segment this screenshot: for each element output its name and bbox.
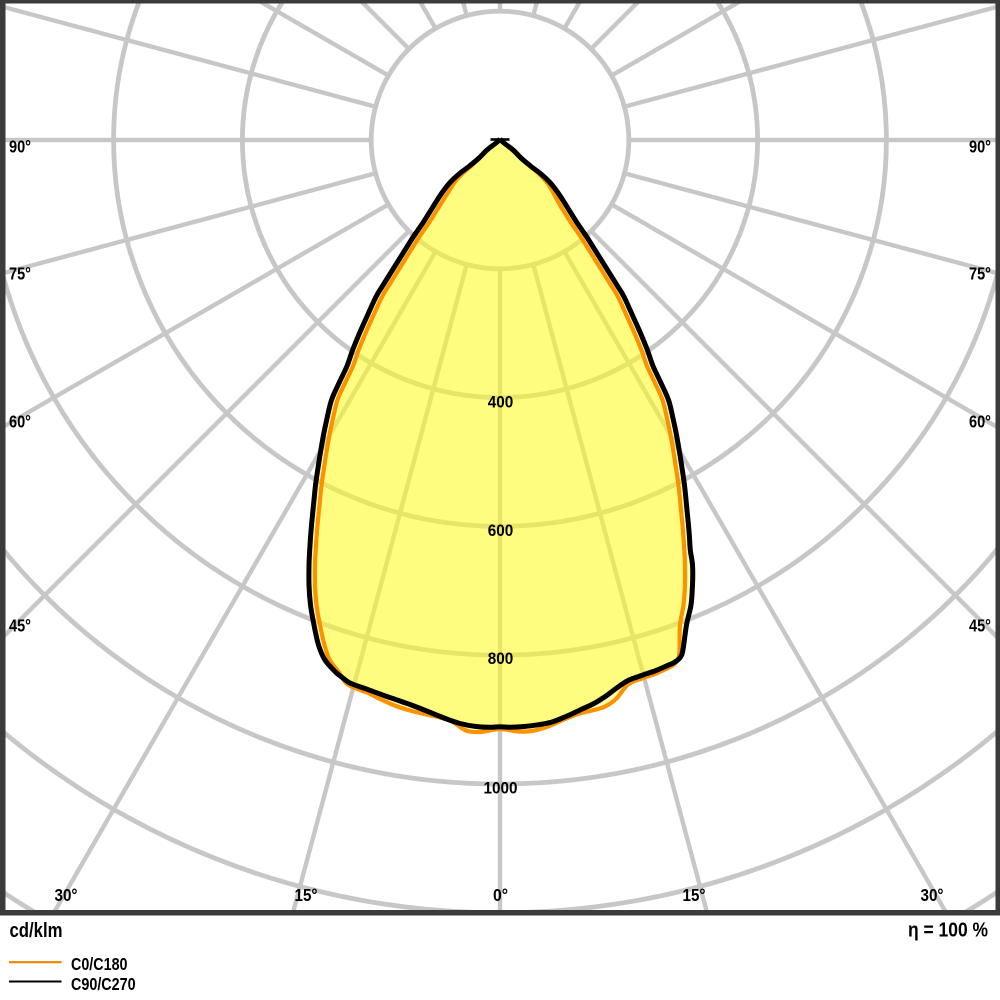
- svg-text:1000: 1000: [484, 780, 518, 798]
- svg-text:60°: 60°: [9, 411, 31, 431]
- svg-text:C90/C270: C90/C270: [71, 974, 136, 994]
- svg-text:30°: 30°: [55, 885, 78, 905]
- svg-text:75°: 75°: [969, 264, 991, 284]
- svg-text:15°: 15°: [683, 885, 706, 905]
- svg-text:0°: 0°: [493, 885, 508, 905]
- svg-text:600: 600: [488, 522, 514, 540]
- svg-text:cd/klm: cd/klm: [10, 920, 63, 942]
- svg-text:C0/C180: C0/C180: [71, 954, 128, 974]
- svg-text:60°: 60°: [969, 411, 991, 431]
- svg-text:90°: 90°: [969, 136, 991, 156]
- svg-text:90°: 90°: [9, 136, 31, 156]
- svg-text:30°: 30°: [921, 885, 944, 905]
- svg-text:45°: 45°: [9, 616, 31, 636]
- svg-text:η = 100 %: η = 100 %: [908, 920, 988, 942]
- svg-text:15°: 15°: [295, 885, 318, 905]
- svg-text:800: 800: [488, 650, 514, 668]
- svg-text:400: 400: [488, 393, 514, 411]
- svg-text:45°: 45°: [969, 616, 991, 636]
- svg-text:75°: 75°: [9, 264, 31, 284]
